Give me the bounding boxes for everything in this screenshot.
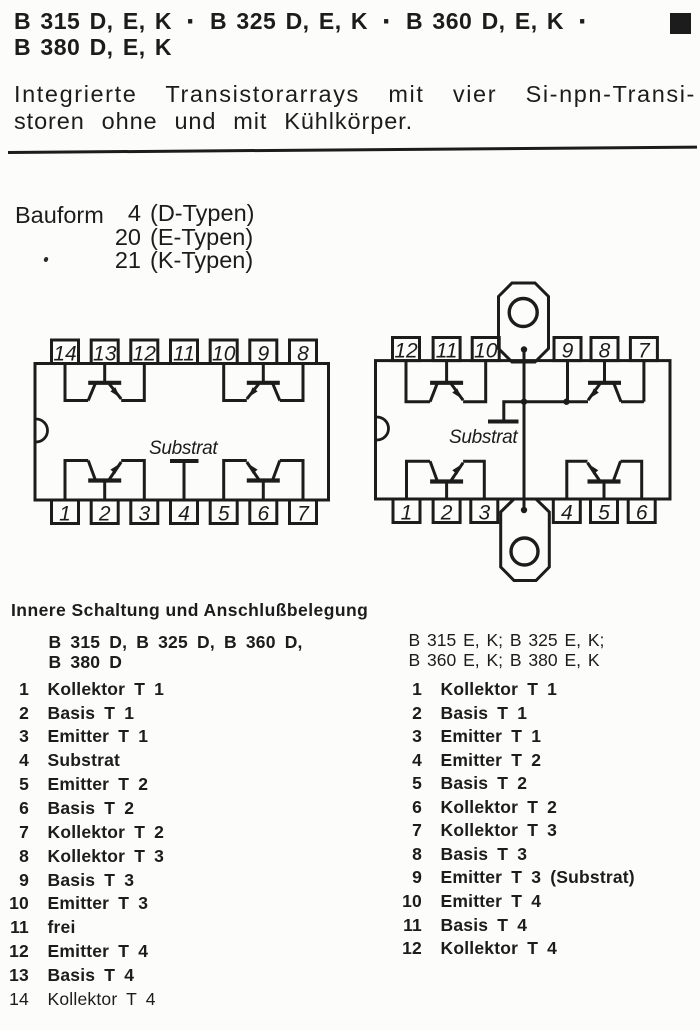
svg-text:4: 4: [561, 501, 573, 524]
svg-text:11: 11: [173, 342, 195, 365]
svg-text:12: 12: [394, 340, 418, 363]
svg-text:3: 3: [138, 502, 150, 525]
svg-text:8: 8: [599, 340, 611, 363]
svg-text:Substrat: Substrat: [449, 427, 518, 448]
svg-text:6: 6: [257, 502, 269, 525]
svg-text:7: 7: [297, 502, 310, 525]
svg-text:2: 2: [98, 502, 111, 525]
svg-text:1: 1: [59, 502, 71, 525]
svg-text:8: 8: [297, 342, 309, 365]
svg-text:9: 9: [562, 340, 574, 363]
svg-text:13: 13: [93, 342, 117, 365]
svg-text:12: 12: [133, 342, 157, 365]
svg-text:9: 9: [257, 342, 269, 365]
svg-text:11: 11: [436, 340, 458, 363]
svg-text:5: 5: [598, 501, 610, 524]
svg-text:2: 2: [440, 501, 453, 524]
svg-text:10: 10: [212, 342, 236, 365]
svg-text:1: 1: [401, 501, 413, 524]
svg-text:10: 10: [474, 340, 498, 363]
svg-text:5: 5: [218, 502, 230, 525]
svg-text:14: 14: [53, 342, 76, 365]
svg-text:4: 4: [178, 502, 190, 525]
svg-text:7: 7: [638, 340, 651, 363]
svg-text:Substrat: Substrat: [149, 438, 218, 459]
svg-text:3: 3: [478, 501, 490, 524]
svg-text:6: 6: [636, 501, 648, 524]
